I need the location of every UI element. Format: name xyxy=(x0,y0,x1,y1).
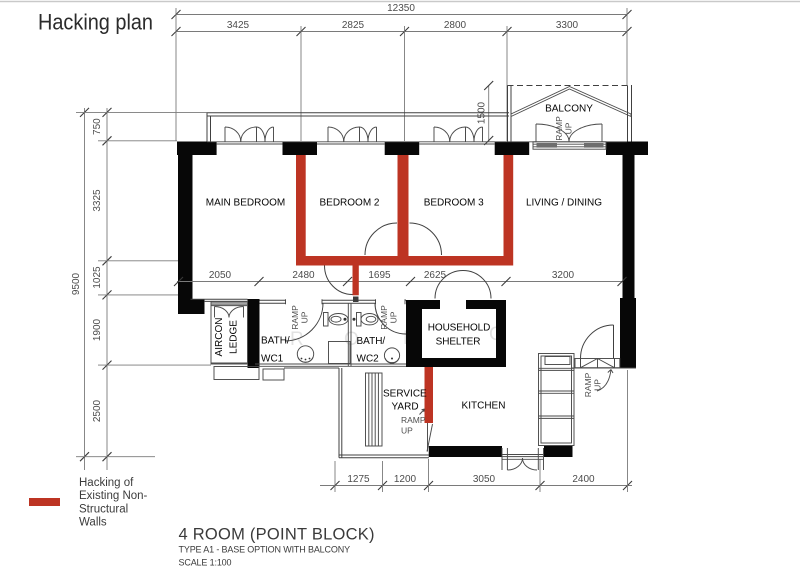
svg-text:RAMP: RAMP xyxy=(401,415,426,425)
svg-text:3050: 3050 xyxy=(473,474,496,485)
svg-text:750: 750 xyxy=(92,118,103,135)
svg-text:LEDGE: LEDGE xyxy=(229,320,240,354)
svg-text:BEDROOM 3: BEDROOM 3 xyxy=(424,198,484,209)
svg-text:BEDROOM 2: BEDROOM 2 xyxy=(319,198,379,209)
svg-text:3300: 3300 xyxy=(556,20,579,31)
svg-text:HOUSEHOLD: HOUSEHOLD xyxy=(428,323,490,334)
svg-text:12350: 12350 xyxy=(387,3,415,14)
svg-text:2800: 2800 xyxy=(444,20,467,31)
svg-text:BATH/: BATH/ xyxy=(261,336,290,347)
svg-text:2400: 2400 xyxy=(572,474,595,485)
svg-text:RAMP: RAMP xyxy=(379,305,389,330)
svg-text:UP: UP xyxy=(401,426,413,436)
svg-text:1025: 1025 xyxy=(92,266,103,289)
svg-text:RAMP: RAMP xyxy=(290,305,300,330)
svg-text:3425: 3425 xyxy=(227,20,250,31)
svg-text:3200: 3200 xyxy=(552,270,575,281)
svg-text:2050: 2050 xyxy=(209,270,232,281)
svg-text:WC2: WC2 xyxy=(357,354,380,365)
svg-text:Walls: Walls xyxy=(79,517,107,529)
svg-text:9500: 9500 xyxy=(71,272,82,295)
svg-text:3325: 3325 xyxy=(92,189,103,212)
svg-text:YARD: YARD xyxy=(392,402,419,413)
svg-text:Existing Non-: Existing Non- xyxy=(79,490,148,502)
svg-text:2480: 2480 xyxy=(292,270,315,281)
svg-text:KITCHEN: KITCHEN xyxy=(462,401,506,412)
svg-text:WC1: WC1 xyxy=(261,354,284,365)
svg-text:UP: UP xyxy=(300,311,310,323)
svg-text:Hacking of: Hacking of xyxy=(79,477,134,489)
svg-text:Hacking plan: Hacking plan xyxy=(38,10,153,35)
svg-text:UP: UP xyxy=(564,122,574,134)
svg-text:RAMP: RAMP xyxy=(583,372,593,397)
svg-text:1695: 1695 xyxy=(368,270,391,281)
svg-text:UP: UP xyxy=(389,311,399,323)
svg-text:BATH/: BATH/ xyxy=(357,336,386,347)
svg-text:4 ROOM (POINT BLOCK): 4 ROOM (POINT BLOCK) xyxy=(179,526,375,544)
svg-text:RAMP: RAMP xyxy=(554,116,564,141)
svg-text:MAIN BEDROOM: MAIN BEDROOM xyxy=(206,198,285,209)
svg-text:SERVICE: SERVICE xyxy=(383,389,427,400)
svg-text:SCALE 1:100: SCALE 1:100 xyxy=(179,558,232,568)
svg-text:2500: 2500 xyxy=(92,399,103,422)
svg-text:1200: 1200 xyxy=(394,474,417,485)
svg-text:Structural: Structural xyxy=(79,503,128,515)
svg-text:BALCONY: BALCONY xyxy=(545,104,593,115)
svg-text:AIRCON: AIRCON xyxy=(214,318,225,357)
svg-text:1900: 1900 xyxy=(92,318,103,341)
svg-text:LIVING / DINING: LIVING / DINING xyxy=(526,198,602,209)
svg-text:SHELTER: SHELTER xyxy=(436,337,481,348)
svg-text:TYPE A1 - BASE OPTION WITH BAL: TYPE A1 - BASE OPTION WITH BALCONY xyxy=(179,545,351,555)
svg-text:1275: 1275 xyxy=(347,474,370,485)
svg-text:2825: 2825 xyxy=(342,20,365,31)
